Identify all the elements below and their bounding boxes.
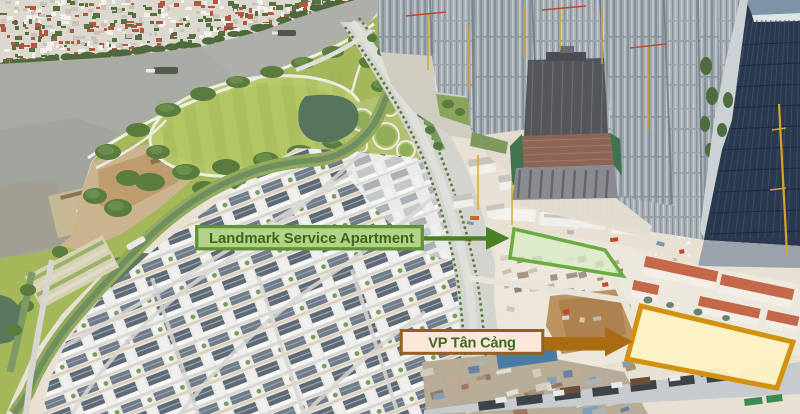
svg-text:VP Tân Cảng: VP Tân Cảng <box>428 336 516 352</box>
svg-text:Landmark Service Apartment: Landmark Service Apartment <box>209 231 414 247</box>
